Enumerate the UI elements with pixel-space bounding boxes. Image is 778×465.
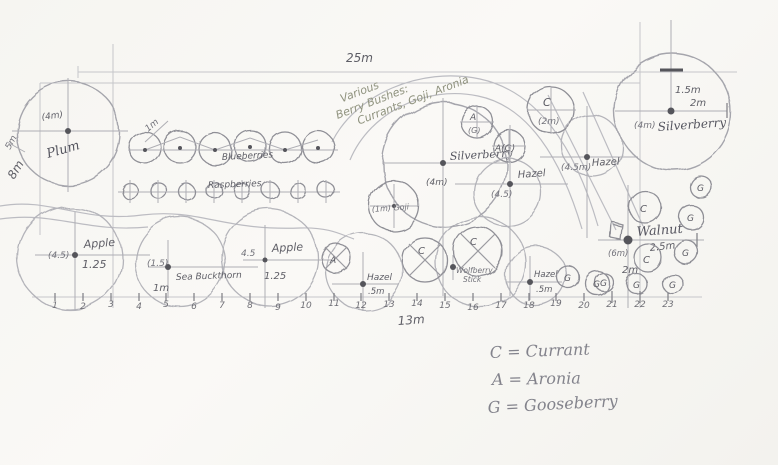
gooseberry-letter: G bbox=[593, 280, 600, 290]
currant-letter: C bbox=[640, 204, 647, 215]
blueberries-row: 1m Blueberries bbox=[128, 117, 338, 165]
gooseberry-far-right-letter: G bbox=[697, 184, 704, 194]
silverberry-right-width-label: 2m bbox=[690, 98, 706, 109]
axis-number: 21 bbox=[606, 300, 617, 310]
plum-size-label: (4m) bbox=[41, 110, 64, 123]
silverberry-right-tree: 1.5m 2m (4m) Silverberry bbox=[615, 20, 731, 170]
axis-number: 23 bbox=[662, 300, 674, 310]
currant-crossed-1: C bbox=[403, 238, 447, 282]
left-height-small-label: 5m bbox=[4, 134, 20, 152]
raspberries-label: Raspberries bbox=[208, 179, 262, 191]
aronia-small-1: A (G) bbox=[460, 105, 494, 139]
apple-west: (4.5) Apple 1.25 bbox=[35, 212, 150, 310]
wolfberry-label-1: Wolfberry bbox=[456, 266, 493, 275]
apple-west-size: (4.5) bbox=[48, 251, 69, 261]
garden-plan-sketch: (4m) Plum 5m 8m 1m Blueberries bbox=[0, 0, 778, 465]
apple-mid-size: 4.5 bbox=[241, 249, 256, 259]
axis-number: 4 bbox=[136, 302, 142, 312]
hazel-upper-right-label: Hazel bbox=[592, 157, 621, 169]
axis-number: 22 bbox=[634, 300, 646, 310]
gooseberry-letter: G bbox=[682, 249, 689, 259]
axis-number: 6 bbox=[191, 302, 197, 312]
wolfberry-label-2: Stick bbox=[463, 275, 482, 284]
aronia-small-1-letter: A bbox=[469, 113, 476, 123]
currant-top-letter: C bbox=[543, 96, 551, 109]
left-height-label: 8m bbox=[5, 158, 27, 182]
axis-number: 3 bbox=[108, 300, 114, 310]
legend-item-gooseberry: G = Gooseberry bbox=[487, 391, 619, 417]
axis-number: 19 bbox=[550, 299, 562, 309]
aronia-crossed-letter: A bbox=[329, 256, 336, 266]
legend-item-currant: C = Currant bbox=[489, 340, 590, 362]
axis-number: 1 bbox=[52, 301, 58, 311]
hazel-lower-east: Hazel .5m bbox=[506, 256, 562, 300]
top-width-label: 25m bbox=[346, 51, 373, 65]
axis-number: 14 bbox=[411, 299, 423, 309]
apple-mid-spacing: 1.25 bbox=[264, 271, 286, 282]
silverberry-center-size-label: (4m) bbox=[426, 178, 448, 188]
silverberry-right-size-label: (4m) bbox=[634, 121, 656, 131]
hazel-upper-left-label: Hazel bbox=[517, 168, 546, 181]
axis-number: 15 bbox=[439, 301, 451, 311]
legend-item-aronia: A = Aronia bbox=[490, 368, 581, 389]
axis-number: 13 bbox=[383, 300, 395, 310]
axis-number: 8 bbox=[247, 301, 253, 311]
bottom-width-label: 13m bbox=[397, 312, 425, 328]
gooseberry-letter: G bbox=[669, 281, 676, 291]
left-edge-dimensions: 5m 8m bbox=[4, 134, 27, 182]
axis-number: 18 bbox=[523, 301, 535, 311]
silverberry-right-height-label: 1.5m bbox=[675, 85, 701, 96]
axis-number: 2 bbox=[80, 302, 86, 312]
sea-buckthorn-size: (1.5) bbox=[147, 259, 168, 269]
hazel-upper-right-size: (4.5m) bbox=[561, 163, 591, 173]
gooseberry-letter: G bbox=[564, 274, 571, 284]
axis-number: 10 bbox=[300, 301, 312, 311]
axis-number: 16 bbox=[467, 303, 479, 313]
apple-mid-label: Apple bbox=[270, 240, 303, 255]
currant-crossed-1-letter: C bbox=[418, 246, 425, 257]
axis-number: 17 bbox=[495, 301, 507, 311]
gooseberry-letter: G bbox=[687, 214, 694, 224]
axis-number: 11 bbox=[328, 299, 339, 309]
hazel-lower-east-label: Hazel bbox=[534, 270, 558, 280]
legend: C = Currant A = Aronia G = Gooseberry bbox=[487, 340, 619, 417]
axis-number: 12 bbox=[355, 301, 367, 311]
axis-number: 7 bbox=[219, 301, 225, 311]
axis-number: 20 bbox=[578, 301, 590, 311]
sea-buckthorn-label: Sea Buckthorn bbox=[176, 271, 242, 283]
walnut-label: Walnut bbox=[636, 222, 684, 240]
hazel-lower-mid-label: Hazel bbox=[367, 273, 393, 283]
silverberry-right-label: Silverberry bbox=[657, 115, 727, 134]
currant-letter: C bbox=[643, 255, 650, 266]
blueberries-label: Blueberries bbox=[222, 150, 274, 163]
walnut-size-label: (6m) bbox=[608, 249, 628, 259]
sketch-svg: (4m) Plum 5m 8m 1m Blueberries bbox=[0, 0, 778, 465]
apple-west-label: Apple bbox=[82, 236, 115, 251]
axis-number: 9 bbox=[275, 303, 281, 313]
gooseberry-letter: G bbox=[600, 279, 607, 289]
hazel-lower-mid-spacing: .5m bbox=[368, 287, 384, 297]
walnut-dim1-label: 2.5m bbox=[649, 240, 676, 254]
axis-number: 5 bbox=[163, 300, 169, 310]
gooseberry-letter: G bbox=[633, 281, 640, 291]
apple-west-spacing: 1.25 bbox=[82, 258, 107, 271]
aronia-small-2-letter: A(G) bbox=[494, 144, 515, 154]
sea-buckthorn-spacing: 1m bbox=[153, 283, 169, 294]
aronia-small-1-sub: (G) bbox=[468, 126, 480, 135]
raspberries-row: Raspberries bbox=[118, 179, 340, 203]
hazel-lower-east-spacing: .5m bbox=[536, 285, 552, 295]
walnut-cluster: Walnut (6m) 2.5m 2m C G C G G G G bbox=[595, 185, 704, 308]
currant-top-size-label: (2m) bbox=[538, 117, 560, 127]
hazel-upper-left-size: (4.5) bbox=[491, 190, 512, 200]
plum-label: Plum bbox=[44, 138, 81, 162]
gooseberry-far-right: G bbox=[690, 176, 712, 198]
plum-tree: (4m) Plum bbox=[12, 78, 128, 192]
currant-crossed-2-letter: C bbox=[470, 237, 477, 248]
goji-bush: (1m) Goji bbox=[369, 181, 419, 231]
